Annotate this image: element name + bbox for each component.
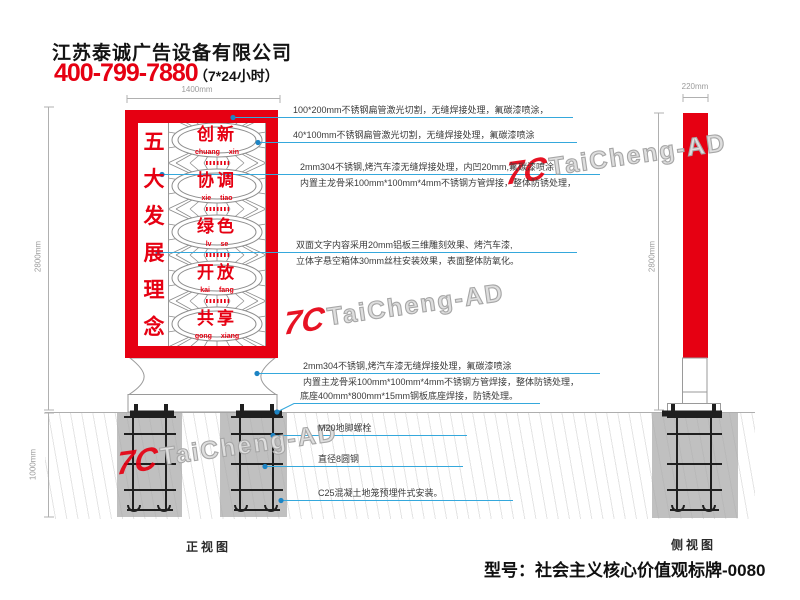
value-pinyin: xie tiao [168,195,266,202]
slogan-char: 理 [144,280,165,301]
value-word: 协调 [168,172,266,189]
value-word: 开放 [168,264,266,281]
dim-front-height: 2800mm [34,227,43,287]
value-word: 创新 [168,126,266,143]
pedestal-outline [129,358,276,395]
value-pinyin: kai fang [168,287,266,294]
dim-foundation-depth: 1000mm [29,435,38,495]
technical-drawing-sheet: 7C TaiCheng-AD 7C TaiCheng-AD 7C TaiChen… [0,0,800,600]
slogan-char: 发 [144,206,165,227]
model-number: 型号：社会主义核心价值观标牌-0080 [484,556,765,581]
dim-sign-width: 1400mm [172,85,222,94]
annotation-lettering: 双面文字内容采用20mm铝板三维雕刻效果、烤汽车漆,立体字悬空箱体30mm丝柱安… [296,240,519,267]
annotation-top-frame: 100*200mm不锈钢扁管激光切割，无缝焊接处理，氟碳漆喷涂， [293,105,549,116]
annotation-concrete: C25混凝土地笼预埋件式安装。 [318,488,443,499]
phone-number: 400-799-7880 [54,59,198,88]
value-pinyin: gong xiang [168,333,266,340]
service-hours: （7*24小时） [194,66,279,86]
slogan-char: 念 [144,317,165,338]
side-red-panel [683,113,708,358]
slogan-char: 展 [144,243,165,264]
sign-side-view [668,113,721,412]
value-word: 共享 [168,310,266,327]
annotation-anchor-bolt: M20地脚螺栓 [318,423,372,434]
value-pinyin: chuang xin [168,149,266,156]
annotation-round-steel: 直径8圆钢 [318,454,359,465]
sign-vertical-slogan: 五 大 发 展 理 念 [140,124,168,346]
annotation-pedestal: 2mm304不锈钢,烤汽车漆无缝焊接处理，氟碳漆喷涂内置主龙骨采100mm*10… [303,361,579,388]
annotation-inner-frame: 40*100mm不锈钢扁管激光切割，无缝焊接处理，氟碳漆喷涂 [293,130,535,141]
base-plate-front [128,395,277,413]
front-view-label: 正视图 [186,538,231,555]
value-word: 绿色 [168,218,266,235]
value-pinyin: lv se [168,241,266,248]
dim-side-height: 2800mm [648,227,657,287]
slogan-char: 大 [144,169,165,190]
dim-side-width: 220mm [670,82,720,91]
slogan-char: 五 [144,132,165,153]
side-view-label: 侧视图 [671,536,716,553]
annotation-cabinet-body: 2mm304不锈钢,烤汽车漆无缝焊接处理，内凹20mm,氟碳漆喷涂内置主龙骨采1… [300,162,576,189]
side-post [683,358,708,404]
annotation-base-plate: 底座400mm*800mm*15mm钢板底座焊接，防锈处理。 [300,391,518,402]
